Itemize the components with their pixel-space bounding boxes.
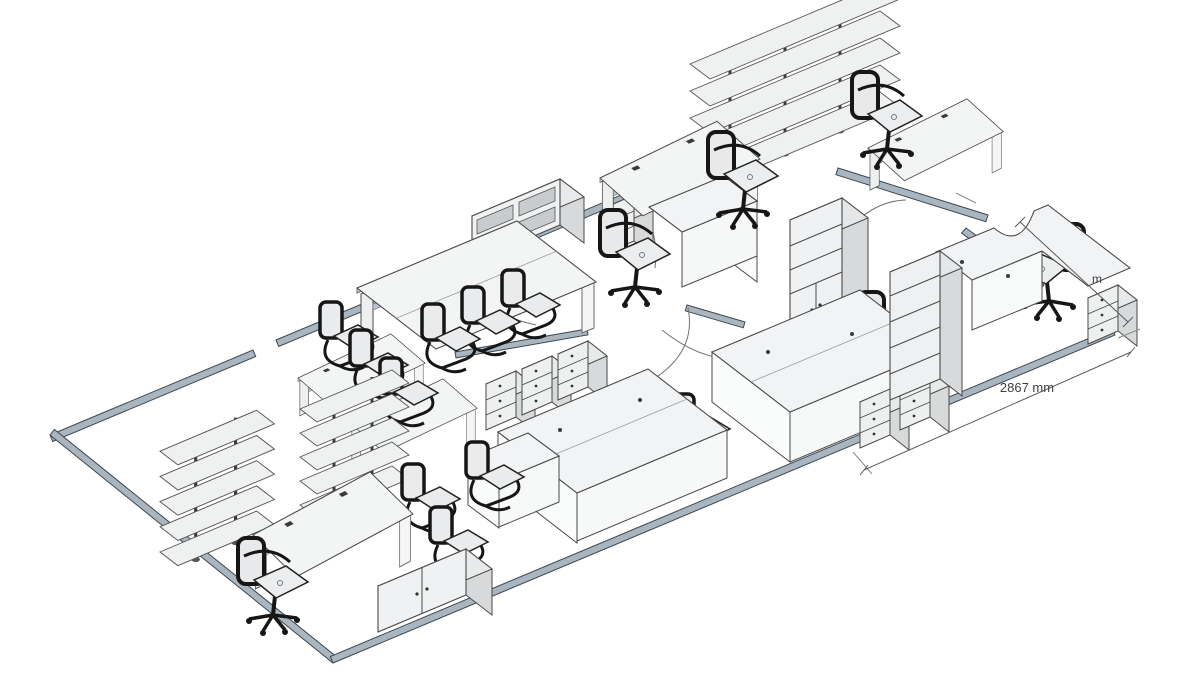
floorplan-canvas[interactable]: 2867 mm m — [0, 0, 1181, 700]
tall-cabinet-right[interactable] — [890, 251, 962, 400]
door-arc-3 — [652, 308, 690, 380]
pedestal-right-office[interactable] — [1088, 285, 1137, 346]
dimension-label-secondary: m — [1092, 272, 1102, 286]
l-desk-right-office[interactable] — [936, 205, 1137, 346]
partition-b — [685, 305, 745, 328]
dimension-label-primary: 2867 mm — [1000, 380, 1054, 395]
meeting-table[interactable] — [357, 221, 596, 349]
office-chair-top-center[interactable] — [600, 210, 670, 308]
extension-line — [956, 193, 976, 203]
render-viewport[interactable]: 2867 mm m — [0, 0, 1181, 700]
extension-line — [853, 452, 872, 474]
